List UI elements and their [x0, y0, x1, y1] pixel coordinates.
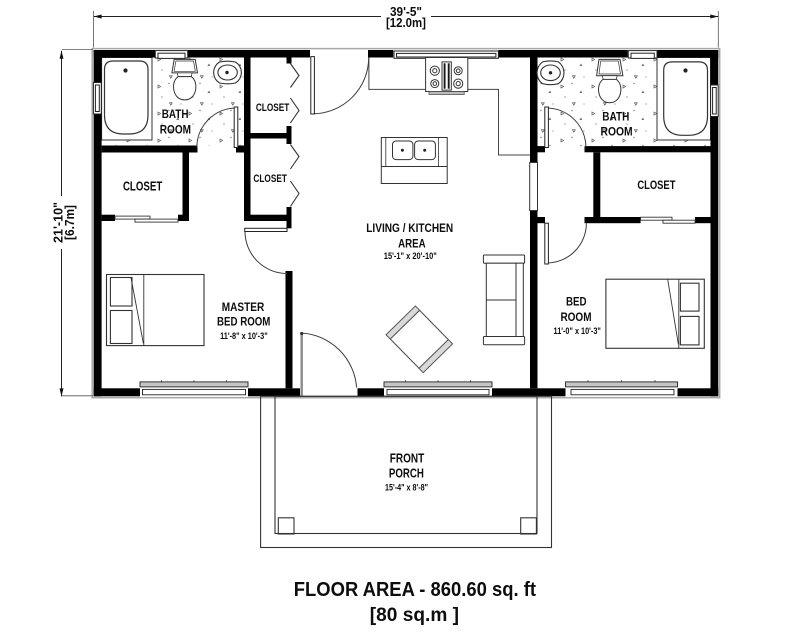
svg-text:MASTER: MASTER [222, 300, 265, 314]
svg-text:CLOSET: CLOSET [253, 173, 287, 185]
svg-text:[12.0m]: [12.0m] [386, 16, 426, 30]
svg-text:ROOM: ROOM [560, 310, 591, 324]
svg-text:BATH: BATH [602, 110, 629, 124]
svg-text:BED: BED [566, 294, 587, 308]
svg-text:BED ROOM: BED ROOM [217, 315, 270, 329]
svg-text:FLOOR AREA - 860.60 sq. ft: FLOOR AREA - 860.60 sq. ft [294, 579, 537, 601]
svg-text:LIVING / KITCHEN: LIVING / KITCHEN [366, 221, 453, 235]
svg-text:CLOSET: CLOSET [256, 102, 290, 114]
svg-text:11'-0" x 10'-3": 11'-0" x 10'-3" [554, 326, 601, 336]
svg-text:FRONT: FRONT [390, 452, 425, 466]
svg-text:CLOSET: CLOSET [637, 178, 675, 192]
svg-text:BATH: BATH [162, 107, 189, 121]
svg-text:[6.7m]: [6.7m] [63, 205, 77, 240]
svg-text:CLOSET: CLOSET [123, 180, 163, 194]
svg-text:11'-8" x 10'-3": 11'-8" x 10'-3" [220, 331, 268, 341]
svg-text:15'-1" x 20'-10": 15'-1" x 20'-10" [384, 251, 437, 261]
svg-text:ROOM: ROOM [160, 122, 191, 136]
svg-text:ROOM: ROOM [601, 125, 633, 139]
svg-text:[80 sq.m ]: [80 sq.m ] [370, 605, 459, 626]
svg-text:PORCH: PORCH [389, 467, 424, 481]
svg-text:AREA: AREA [398, 236, 426, 250]
svg-text:15'-4" x 8'-8": 15'-4" x 8'-8" [385, 482, 428, 492]
